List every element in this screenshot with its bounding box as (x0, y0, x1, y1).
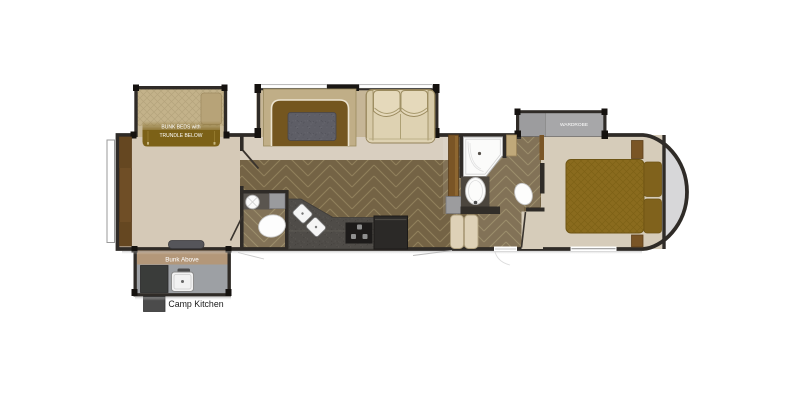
svg-text:WARDROBE: WARDROBE (560, 122, 588, 128)
svg-text:Bunk Above: Bunk Above (165, 257, 199, 264)
svg-text:BUNK BEDS with: BUNK BEDS with (161, 124, 200, 130)
svg-text:TRUNDLE BELOW: TRUNDLE BELOW (159, 133, 202, 139)
